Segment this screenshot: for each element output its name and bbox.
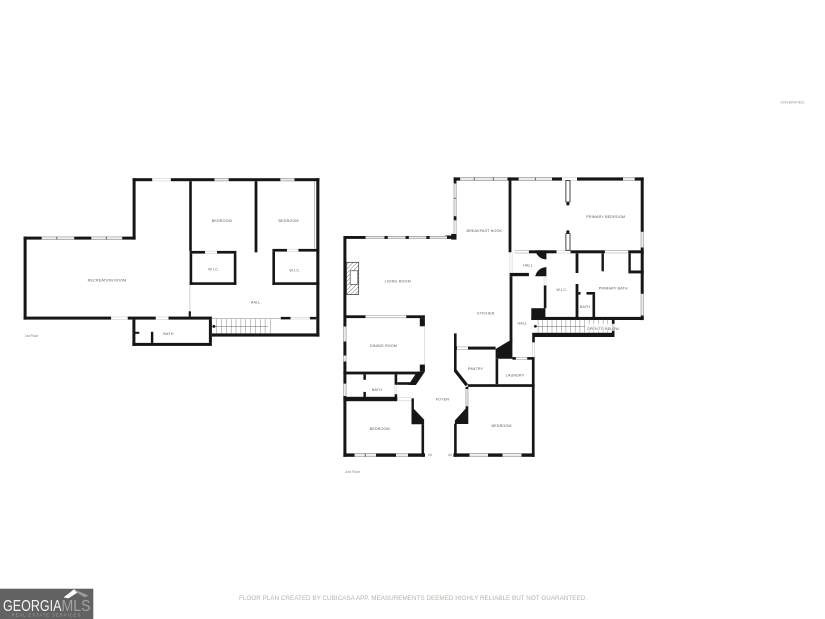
svg-text:PRIMARY BATH: PRIMARY BATH xyxy=(599,286,628,290)
svg-text:BATH: BATH xyxy=(580,305,590,309)
svg-text:2nd Floor: 2nd Floor xyxy=(345,470,361,474)
svg-text:LAUNDRY: LAUNDRY xyxy=(506,374,525,378)
svg-text:REAL ESTATE SERVICES: REAL ESTATE SERVICES xyxy=(12,612,82,617)
svg-text:BEDROOM: BEDROOM xyxy=(492,424,512,428)
svg-text:BEDROOM: BEDROOM xyxy=(212,219,232,223)
svg-text:PANTRY: PANTRY xyxy=(468,367,484,371)
svg-text:FOYER: FOYER xyxy=(436,397,450,401)
svg-text:BATH: BATH xyxy=(372,388,382,392)
svg-text:W.I.C.: W.I.C. xyxy=(556,288,567,292)
svg-text:FLOOR PLAN CREATED BY CUBICASA: FLOOR PLAN CREATED BY CUBICASA APP. MEAS… xyxy=(239,595,587,602)
svg-text:UNVERIFIED.: UNVERIFIED. xyxy=(781,101,806,105)
svg-text:1st Floor: 1st Floor xyxy=(25,334,39,338)
svg-text:HALL: HALL xyxy=(523,263,533,267)
svg-text:DINING ROOM: DINING ROOM xyxy=(370,344,397,348)
svg-text:PRIMARY BEDROOM: PRIMARY BEDROOM xyxy=(586,215,625,219)
svg-text:OPEN TO BELOW: OPEN TO BELOW xyxy=(587,327,619,331)
svg-text:RECREATION ROOM: RECREATION ROOM xyxy=(88,279,127,283)
svg-text:BREAKFAST NOOK: BREAKFAST NOOK xyxy=(466,229,502,233)
svg-text:BEDROOM: BEDROOM xyxy=(279,219,299,223)
svg-text:HALL: HALL xyxy=(251,300,261,304)
svg-text:HALL: HALL xyxy=(517,322,527,326)
svg-text:BATH: BATH xyxy=(163,332,173,336)
svg-text:W.I.C.: W.I.C. xyxy=(208,267,219,271)
svg-text:BEDROOM: BEDROOM xyxy=(370,427,390,431)
svg-text:KITCHEN: KITCHEN xyxy=(477,311,494,315)
svg-text:W.I.C.: W.I.C. xyxy=(289,268,300,272)
svg-text:LIVING ROOM: LIVING ROOM xyxy=(385,279,411,283)
